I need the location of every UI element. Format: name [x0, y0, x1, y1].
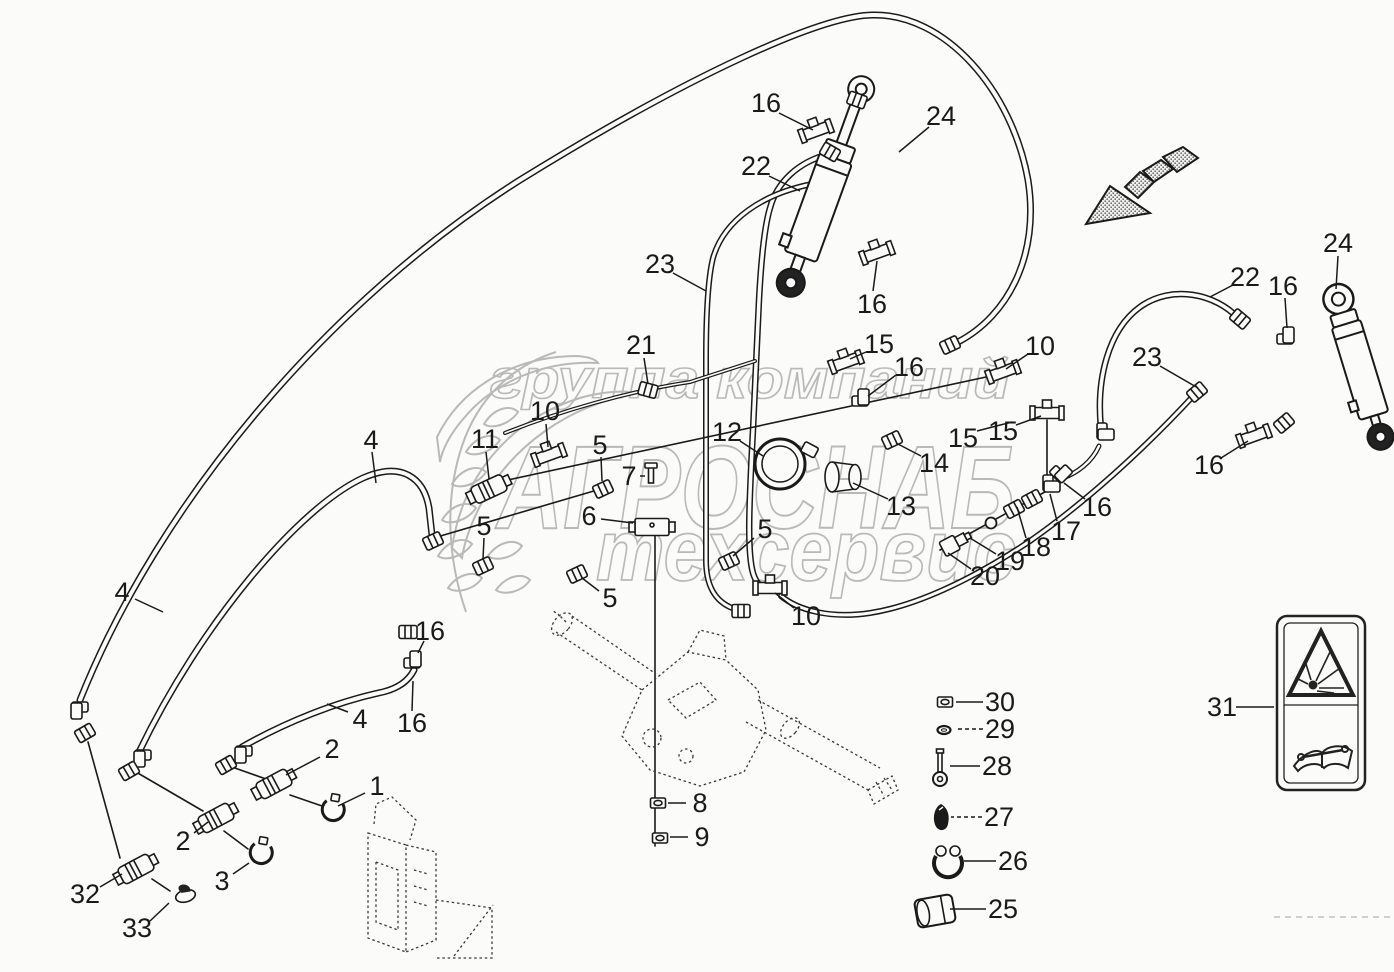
callout-label: 10: [530, 396, 560, 426]
callout-label: 14: [919, 448, 949, 478]
callout-label: 13: [886, 491, 916, 521]
callout-label: 15: [948, 423, 978, 453]
part-fit: [1030, 400, 1064, 420]
part-block: [629, 519, 675, 536]
callout-leader: [486, 452, 489, 479]
callout-label: 23: [1132, 342, 1162, 372]
part-bolt28: [933, 749, 947, 786]
callout-label: 11: [471, 424, 499, 454]
callout-label: 27: [984, 802, 1014, 832]
part-hexnut: [651, 798, 666, 808]
part-nut: [422, 531, 444, 550]
part-coupler: [249, 765, 298, 802]
bracket-reference-dashed: [368, 797, 493, 958]
part-nut: [74, 723, 96, 743]
callout-leader: [673, 273, 706, 291]
callout-label: 21: [626, 330, 656, 360]
callout-label: 24: [1323, 228, 1353, 258]
callout-label: 23: [645, 249, 675, 279]
callout-label: 16: [751, 88, 781, 118]
part-elbow: [1097, 423, 1114, 440]
part-elbow: [404, 651, 421, 668]
callout-label: 6: [581, 501, 596, 531]
callout-label: 26: [998, 846, 1028, 876]
part-nut: [215, 755, 237, 775]
callout-label: 24: [926, 101, 956, 131]
callout-label: 15: [864, 329, 894, 359]
callout-label: 5: [476, 511, 491, 541]
part-nut: [732, 605, 750, 618]
part-fit: [1234, 418, 1273, 448]
callout-label: 16: [1194, 450, 1224, 480]
part-sleeve: [914, 894, 956, 928]
part-hexnut: [938, 697, 953, 707]
callout-leader: [1160, 366, 1198, 388]
callout-label: 18: [1021, 532, 1051, 562]
part-ring: [986, 518, 997, 529]
part-hexnut: [653, 833, 668, 843]
callout-label: 33: [122, 913, 152, 943]
callout-label: 16: [1268, 271, 1298, 301]
callout-leader: [286, 757, 320, 775]
callout-label: 15: [988, 416, 1018, 446]
part-elbow: [134, 750, 151, 767]
callout-label: 10: [791, 601, 821, 631]
part-coupler: [191, 799, 240, 836]
callout-label: 3: [214, 866, 229, 896]
callout-label: 4: [363, 425, 378, 455]
callout-leader: [372, 452, 376, 483]
callout-label: 16: [397, 708, 427, 738]
part-elbow: [71, 702, 88, 719]
part-nut: [472, 556, 494, 575]
callout-leader: [1285, 298, 1287, 328]
part-elbow: [235, 746, 252, 763]
callout-label: 8: [692, 788, 707, 818]
callout-label: 2: [175, 826, 190, 856]
part-nut: [1021, 489, 1043, 509]
callout-label: 4: [114, 577, 129, 607]
callout-leader: [135, 599, 163, 612]
callout-label: 5: [757, 514, 772, 544]
callout-leader: [1221, 441, 1248, 458]
part-nut: [1273, 412, 1295, 434]
callout-leader: [1016, 416, 1041, 425]
callout-leader: [483, 538, 484, 559]
callout-label: 10: [1025, 331, 1055, 361]
part-elbow: [1277, 327, 1294, 344]
callout-label: 28: [982, 751, 1012, 781]
part-cap33: [173, 882, 197, 904]
callout-label: 32: [70, 879, 100, 909]
part-fit: [857, 235, 896, 265]
safety-sticker: [1277, 616, 1365, 790]
callout-leader: [150, 903, 169, 921]
callout-label: 30: [985, 687, 1015, 717]
callout-label: 16: [894, 352, 924, 382]
callout-label: 4: [352, 704, 367, 734]
callout-label: 17: [1051, 516, 1081, 546]
callout-label: 29: [985, 714, 1015, 744]
callout-label: 7: [621, 461, 636, 491]
callout-label: 31: [1207, 692, 1237, 722]
callout-leader: [899, 127, 929, 152]
callout-label: 22: [741, 151, 771, 181]
callout-leader: [412, 681, 413, 711]
callout-label: 9: [694, 822, 709, 852]
diagram-canvas: группа компаний АГРОСНАБ техсервис: [0, 0, 1394, 972]
part-oring: [938, 726, 951, 734]
callout-label: 1: [369, 771, 384, 801]
callout-label: 16: [1082, 492, 1112, 522]
direction-arrow-icon: [1086, 147, 1198, 224]
part-plug: [934, 804, 949, 830]
part-clamp: [321, 792, 347, 822]
callout-label: 2: [324, 734, 339, 764]
part-clamp: [249, 835, 275, 865]
callout-leader: [233, 863, 249, 874]
callout-label: 16: [857, 289, 887, 319]
callout-label: 12: [712, 417, 742, 447]
watermark-layer: группа компаний АГРОСНАБ техсервис: [437, 347, 1016, 612]
callout-label: 25: [988, 894, 1018, 924]
callout-leader: [601, 457, 602, 481]
callout-label: 20: [970, 561, 1000, 591]
callout-label: 5: [592, 430, 607, 460]
cylinder-right: [1314, 280, 1394, 455]
callout-label: 16: [415, 616, 445, 646]
callout-label: 5: [602, 583, 617, 613]
part-clamp26: [934, 846, 962, 877]
axle-reference-dashed: [548, 609, 898, 804]
callout-leader: [873, 261, 877, 291]
callout-leader: [338, 793, 365, 806]
parts-diagram-page: группа компаний АГРОСНАБ техсервис: [0, 0, 1394, 972]
callout-label: 22: [1230, 262, 1260, 292]
